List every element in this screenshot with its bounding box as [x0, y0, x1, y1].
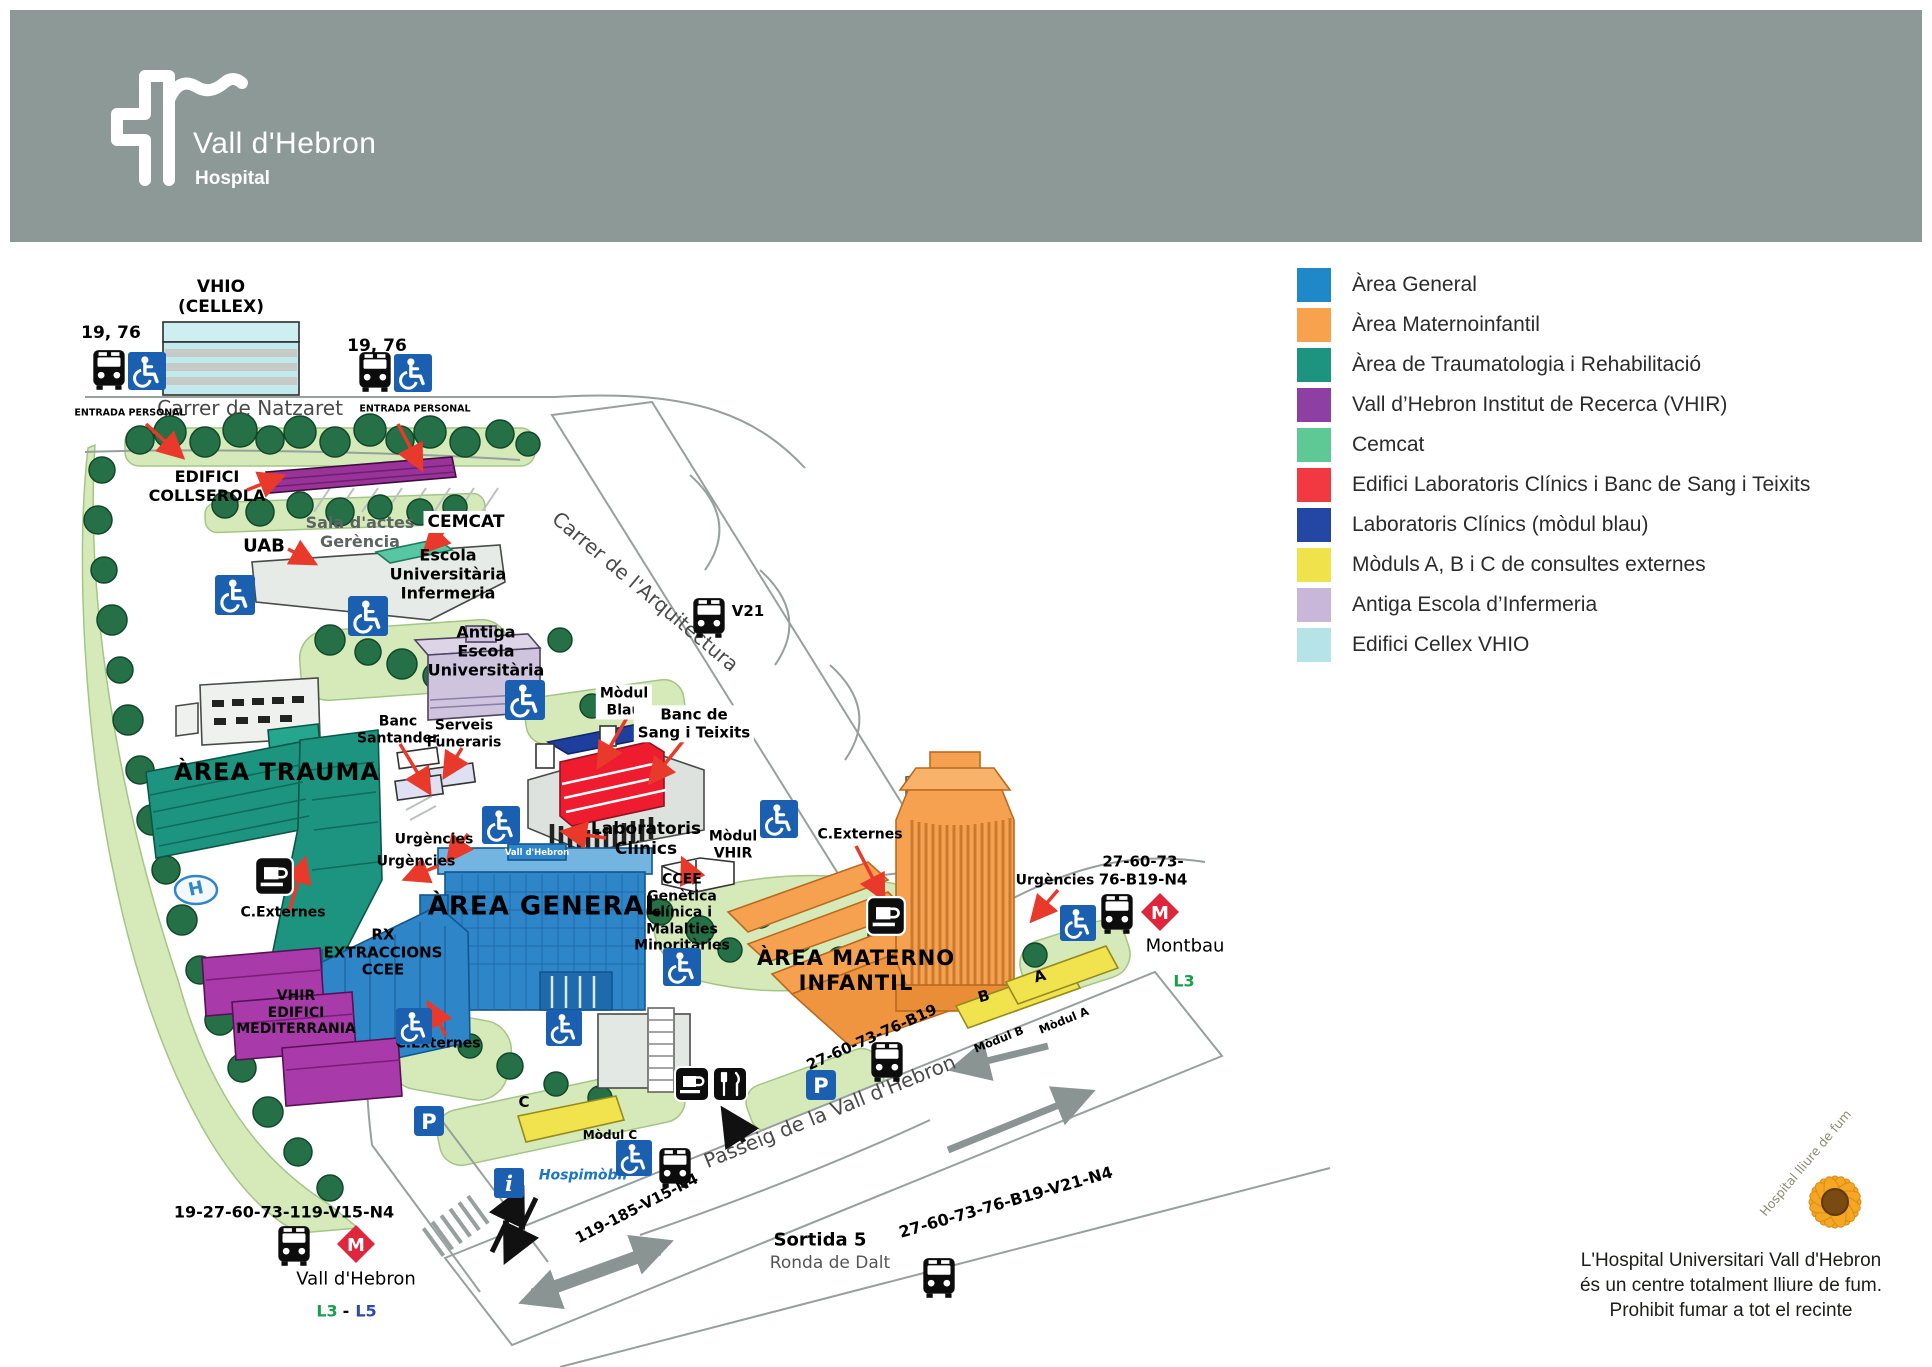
legend-item-label: Vall d’Hebron Institut de Recerca (VHIR): [1352, 393, 1727, 417]
accessibility-icon: [482, 806, 520, 848]
accessibility-icon: [348, 596, 388, 640]
bus-icon: [275, 1224, 313, 1270]
legend-item-label: Edifici Laboratoris Clínics i Banc de Sa…: [1352, 473, 1810, 497]
vhir-mediterrania-label: VHIR EDIFICI MEDITERRANIA: [236, 988, 356, 1038]
bus-icon: [1098, 892, 1136, 938]
campus-map: [0, 0, 1932, 1367]
bus-icon: [920, 1256, 958, 1302]
entrada-personal-left: ENTRADA PERSONAL: [74, 407, 185, 418]
cafe-icon: [254, 856, 294, 900]
legend-item: Cemcat: [1297, 425, 1810, 465]
info-icon: i: [494, 1168, 524, 1202]
modul-vhir-label: Mòdul VHIR: [709, 828, 757, 861]
sortida-5-label: Sortida 5: [774, 1229, 867, 1250]
metro-icon: M: [1140, 892, 1180, 936]
rx-extraccions-label: RX EXTRACCIONS CCEE: [324, 926, 443, 979]
vhio-label: VHIO: [197, 277, 245, 297]
legend-swatch: [1297, 428, 1331, 462]
c-externes-label-1: C.Externes: [240, 905, 325, 922]
legend-item: Antiga Escola d’Infermeria: [1297, 585, 1810, 625]
no-smoking-line: Prohibit fumar a tot el recinte: [1561, 1298, 1901, 1323]
bus-route-19-27-label: 19-27-60-73-119-V15-N4: [174, 1204, 394, 1223]
area-trauma-label: ÀREA TRAUMA: [174, 758, 380, 786]
svg-text:i: i: [505, 1171, 513, 1196]
letter-c-label: C: [518, 1094, 529, 1112]
accessibility-icon: [1060, 905, 1096, 945]
accessibility-icon: [128, 352, 166, 394]
bus-19-76-left-label: 19, 76: [81, 323, 141, 343]
legend-item: Àrea Maternoinfantil: [1297, 305, 1810, 345]
v21-label: V21: [732, 603, 764, 621]
bus-icon: [690, 596, 728, 642]
no-smoking-line: L'Hospital Universitari Vall d'Hebron: [1561, 1248, 1901, 1273]
urgencies-label-2: Urgències: [377, 854, 456, 871]
parking-icon: P: [806, 1070, 836, 1104]
parking-icon: P: [414, 1106, 444, 1140]
banc-sang-label: Banc de Sang i Teixits: [634, 705, 754, 742]
bus-icon: [656, 1146, 694, 1192]
antiga-escola-label: Antiga Escola Universitària: [428, 624, 545, 681]
sunflower-icon: [1778, 1142, 1888, 1257]
accessibility-icon: [546, 1010, 582, 1050]
legend-swatch: [1297, 308, 1331, 342]
restaurant-icon: [712, 1066, 748, 1106]
escola-infermeria-label: Escola Universitària Infermeria: [390, 547, 507, 604]
cafe-icon: [674, 1066, 710, 1106]
building-cellex: [163, 322, 299, 395]
edifici-collserola-label: EDIFICI COLLSEROLA: [149, 468, 266, 506]
l3-l5-dash: -: [343, 1303, 350, 1322]
legend-item-label: Àrea General: [1352, 273, 1477, 297]
svg-text:M: M: [1151, 903, 1169, 924]
legend-item: Laboratoris Clínics (mòdul blau): [1297, 505, 1810, 545]
legend-item: Vall d’Hebron Institut de Recerca (VHIR): [1297, 385, 1810, 425]
legend-swatch: [1297, 508, 1331, 542]
legend-swatch: [1297, 548, 1331, 582]
vall-dhebron-stop-label: Vall d'Hebron: [296, 1268, 416, 1289]
accessibility-icon: [394, 354, 432, 396]
urgencies-label-1: Urgències: [395, 832, 474, 849]
legend-swatch: [1297, 388, 1331, 422]
accessibility-icon: [505, 680, 545, 724]
urgencies-label-3: Urgències: [1016, 873, 1095, 890]
legend: Àrea GeneralÀrea MaternoinfantilÀrea de …: [1297, 265, 1810, 665]
general-roof-sign: Vall d'Hebron: [505, 848, 569, 858]
svg-text:M: M: [347, 1235, 365, 1256]
accessibility-icon: [616, 1140, 652, 1180]
legend-item-label: Mòduls A, B i C de consultes externes: [1352, 553, 1706, 577]
bus-route-montbau-label: 27-60-73- 76-B19-N4: [1099, 853, 1188, 888]
svg-text:P: P: [813, 1074, 828, 1098]
ronda-de-dalt-label: Ronda de Dalt: [770, 1253, 890, 1273]
l5-bottom-label: L5: [355, 1303, 376, 1322]
no-smoking-line: és un centre totalment lliure de fum.: [1561, 1273, 1901, 1298]
uab-label: UAB: [243, 535, 285, 556]
metro-icon: M: [336, 1224, 376, 1268]
cafe-icon: [866, 896, 906, 940]
legend-swatch: [1297, 348, 1331, 382]
legend-item: Edifici Laboratoris Clínics i Banc de Sa…: [1297, 465, 1810, 505]
serveis-funeraris-label: Serveis Funeraris: [427, 717, 502, 750]
hospimobil-label: Hospimòbil: [539, 1168, 627, 1185]
legend-item: Àrea de Traumatologia i Rehabilitació: [1297, 345, 1810, 385]
area-general-label: ÀREA GENERAL: [428, 892, 662, 923]
bus-icon: [356, 350, 394, 396]
legend-item-label: Antiga Escola d’Infermeria: [1352, 593, 1597, 617]
legend-item-label: Cemcat: [1352, 433, 1424, 457]
bus-icon: [90, 348, 128, 394]
cellex-label: (CELLEX): [178, 297, 264, 317]
l3-bottom-label: L3: [316, 1303, 337, 1322]
accessibility-icon: [396, 1008, 432, 1048]
cemcat-label: CEMCAT: [424, 511, 509, 533]
legend-item-label: Edifici Cellex VHIO: [1352, 633, 1529, 657]
legend-item-label: Àrea de Traumatologia i Rehabilitació: [1352, 353, 1701, 377]
entrada-personal-right: ENTRADA PERSONAL: [359, 403, 470, 414]
montbau-label: Montbau: [1146, 935, 1225, 956]
accessibility-icon: [215, 575, 255, 619]
page: Vall d'Hebron Hospital: [0, 0, 1932, 1367]
legend-item-label: Àrea Maternoinfantil: [1352, 313, 1540, 337]
legend-item: Mòduls A, B i C de consultes externes: [1297, 545, 1810, 585]
bus-icon: [868, 1040, 906, 1086]
legend-item: Àrea General: [1297, 265, 1810, 305]
legend-swatch: [1297, 588, 1331, 622]
legend-item-label: Laboratoris Clínics (mòdul blau): [1352, 513, 1648, 537]
l3-montbau-label: L3: [1173, 973, 1194, 992]
svg-text:P: P: [421, 1110, 436, 1134]
accessibility-icon: [663, 948, 701, 990]
accessibility-icon: [760, 800, 798, 842]
no-smoking-note: L'Hospital Universitari Vall d'Hebronés …: [1561, 1248, 1901, 1323]
legend-swatch: [1297, 268, 1331, 302]
legend-item: Edifici Cellex VHIO: [1297, 625, 1810, 665]
legend-swatch: [1297, 468, 1331, 502]
area-materno-label: ÀREA MATERNO INFANTIL: [757, 946, 955, 996]
legend-swatch: [1297, 628, 1331, 662]
c-externes-label-3: C.Externes: [817, 827, 902, 844]
laboratoris-clinics-label: Laboratoris Clínics: [591, 819, 701, 859]
